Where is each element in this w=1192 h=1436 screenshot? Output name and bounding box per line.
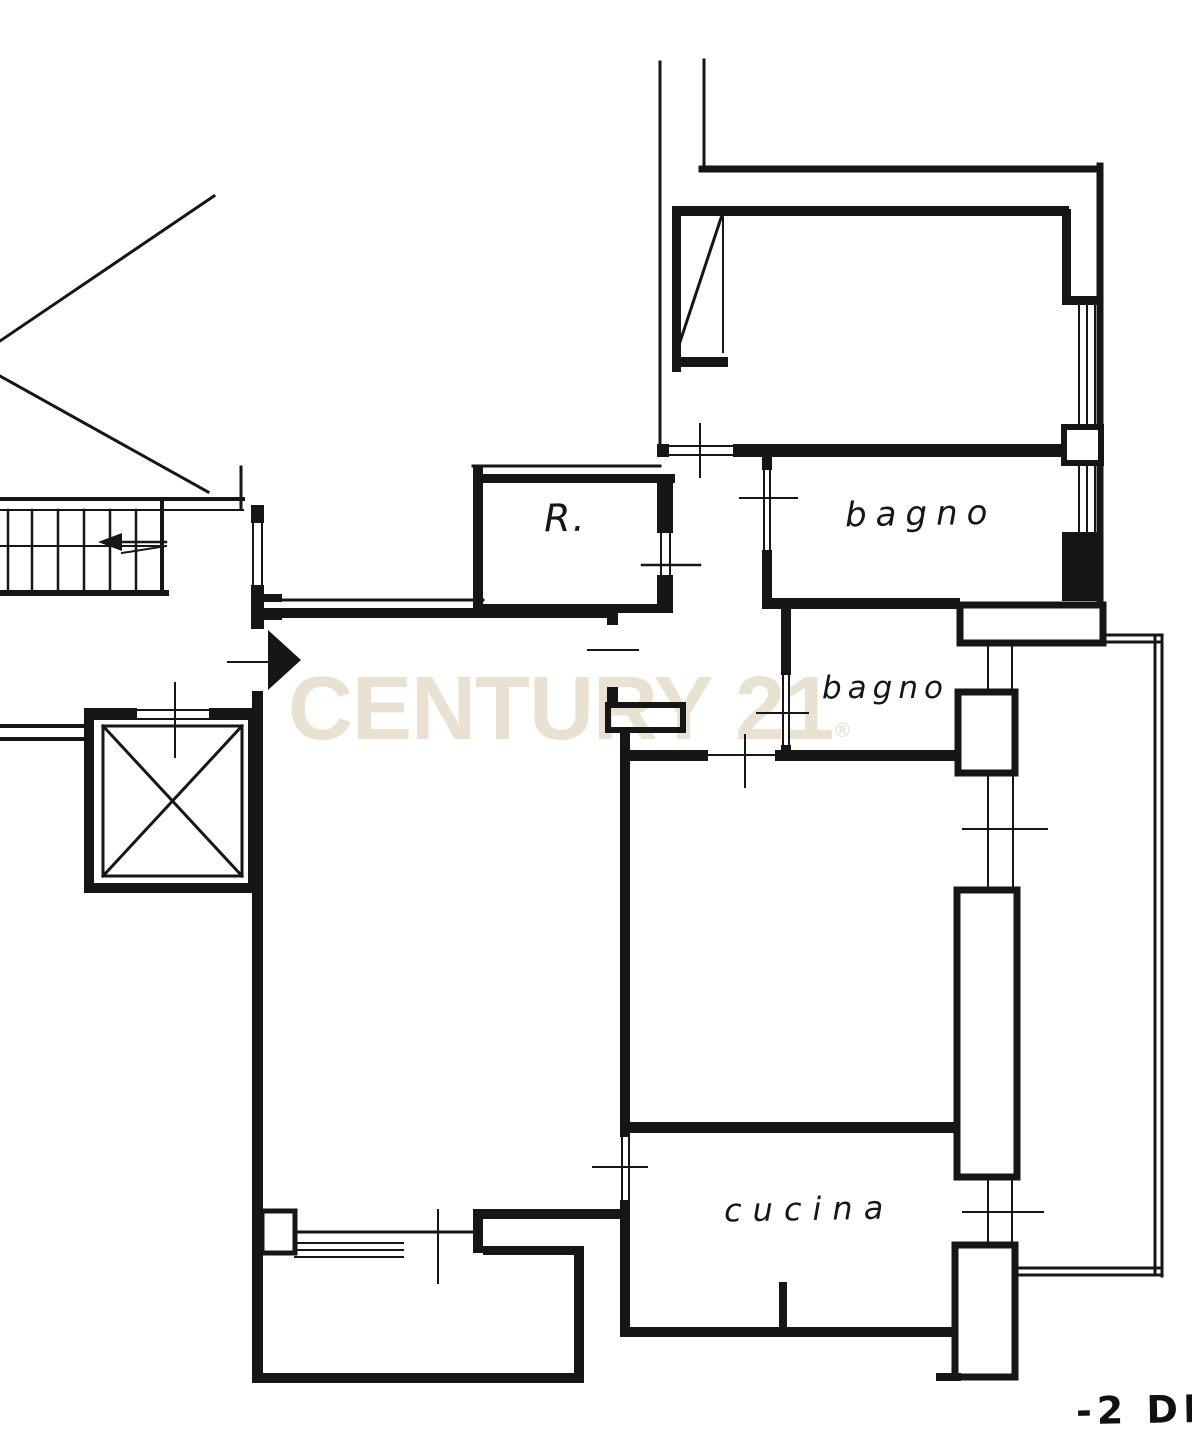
- break-lines: [0, 196, 214, 492]
- bathroom-top-walls: [740, 450, 1103, 643]
- bedroom-walls: [657, 60, 1102, 643]
- floor-plan-drawing: [0, 0, 1192, 1436]
- wall-block: [955, 1245, 1015, 1377]
- room-label-kitchen: cucina: [724, 1189, 895, 1230]
- corridor-walls: [588, 608, 683, 730]
- elevator: [0, 683, 260, 893]
- threshold-step: [608, 705, 683, 730]
- wall-block: [960, 605, 1103, 643]
- duct-shaft: [957, 890, 1017, 1177]
- door-swing: [674, 215, 722, 360]
- wall-pilaster: [262, 1211, 295, 1253]
- entrance-arrow-icon: [268, 630, 301, 690]
- bathroom-mid-walls: [622, 609, 1015, 787]
- wall-pier: [1064, 427, 1101, 463]
- living-room-walls: [252, 600, 630, 1383]
- date-stamp: -2 DI: [1076, 1387, 1192, 1433]
- floor-plan-page: CENTURY 21®: [0, 0, 1192, 1436]
- room-label-bathroom-mid: bagno: [822, 670, 949, 706]
- staircase: [0, 499, 243, 593]
- duct-shaft: [958, 692, 1015, 773]
- central-duct: [957, 773, 1047, 1177]
- room-label-r: R.: [544, 496, 587, 541]
- room-label-bathroom-top: bagno: [845, 493, 997, 536]
- terrace-outline: [1015, 635, 1162, 1276]
